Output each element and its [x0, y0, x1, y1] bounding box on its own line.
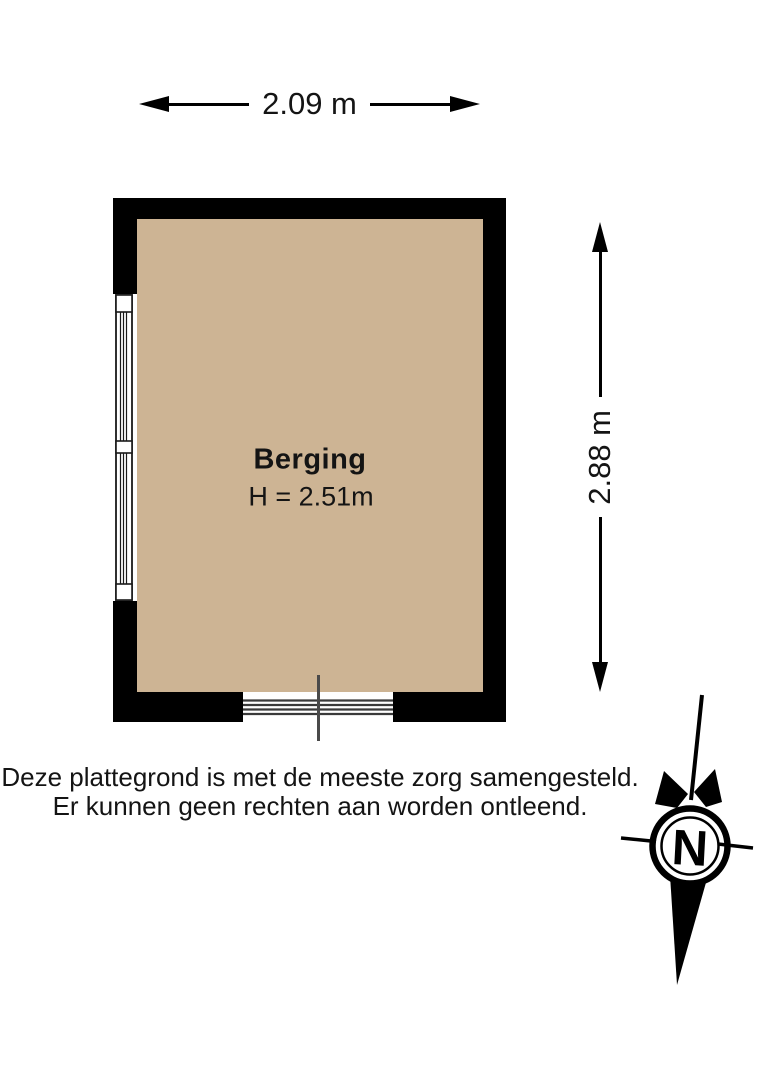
door-marker-line: [317, 675, 320, 741]
width-dimension: 2.09 m: [139, 89, 480, 119]
disclaimer-line-1: Deze plattegrond is met de meeste zorg s…: [0, 763, 640, 792]
arrow-right-icon: [450, 96, 480, 112]
width-dimension-label: 2.09 m: [249, 89, 370, 119]
window-icon: [113, 294, 137, 601]
arrow-up-icon: [592, 222, 608, 252]
window-opening: [113, 294, 137, 601]
dimension-line: [599, 252, 602, 397]
disclaimer-line-2: Er kunnen geen rechten aan worden ontlee…: [0, 792, 640, 821]
north-compass-icon: N: [615, 688, 768, 990]
depth-dimension-label: 2.88 m: [582, 397, 618, 518]
compass-north-label: N: [670, 819, 709, 877]
dimension-line: [599, 517, 602, 662]
depth-dimension: 2.88 m: [584, 222, 616, 692]
dimension-line: [169, 103, 249, 106]
disclaimer: Deze plattegrond is met de meeste zorg s…: [0, 763, 640, 821]
arrow-left-icon: [139, 96, 169, 112]
room-name-label: Berging: [253, 444, 366, 477]
dimension-line: [370, 103, 450, 106]
floorplan-canvas: 2.09 m Berging H = 2.51m: [0, 0, 768, 1086]
room-height-label: H = 2.51m: [248, 482, 373, 513]
arrow-down-icon: [592, 662, 608, 692]
